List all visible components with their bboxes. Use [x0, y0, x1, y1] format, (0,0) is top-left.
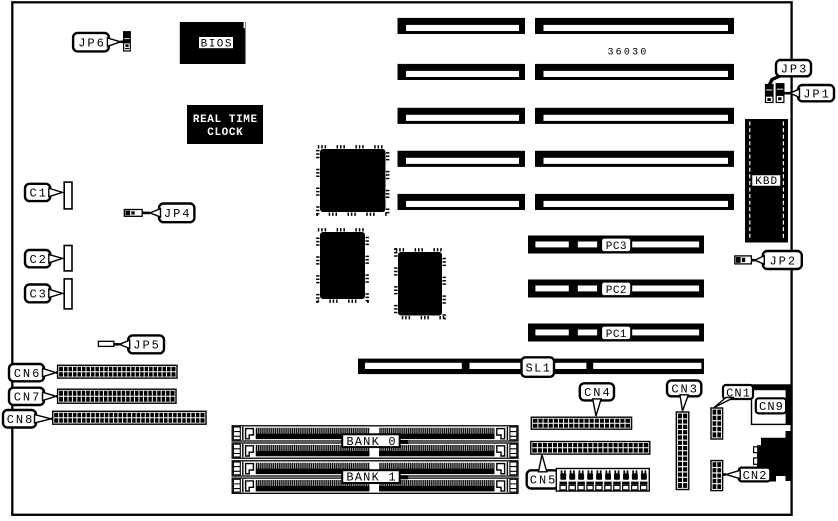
svg-text:JP1: JP1 — [803, 87, 831, 101]
svg-text:CN7: CN7 — [14, 391, 42, 405]
svg-text:JP4: JP4 — [164, 207, 192, 221]
svg-text:BANK 0: BANK 0 — [346, 435, 396, 449]
svg-text:JP3: JP3 — [781, 62, 809, 76]
svg-text:SL1: SL1 — [526, 361, 552, 375]
svg-text:CN5: CN5 — [530, 474, 558, 488]
svg-text:C2: C2 — [29, 253, 47, 267]
svg-text:JP2: JP2 — [769, 254, 797, 268]
svg-text:CN9: CN9 — [759, 400, 784, 414]
svg-text:JP6: JP6 — [78, 36, 106, 50]
svg-text:JP5: JP5 — [133, 339, 161, 353]
svg-text:BANK 1: BANK 1 — [346, 471, 396, 485]
svg-text:CLOCK: CLOCK — [207, 127, 243, 139]
svg-text:KBD: KBD — [755, 176, 778, 188]
svg-text:CN3: CN3 — [671, 383, 699, 397]
svg-text:C1: C1 — [29, 187, 47, 201]
svg-text:36030: 36030 — [607, 48, 648, 59]
svg-text:PC1: PC1 — [606, 329, 627, 341]
svg-text:CN1: CN1 — [726, 386, 751, 400]
svg-text:CN6: CN6 — [14, 367, 42, 381]
svg-text:PC2: PC2 — [606, 285, 627, 297]
svg-text:C3: C3 — [29, 288, 47, 302]
svg-text:REAL TIME: REAL TIME — [193, 114, 258, 126]
svg-text:CN8: CN8 — [7, 413, 35, 427]
svg-text:CN4: CN4 — [584, 386, 612, 400]
svg-text:PC3: PC3 — [606, 241, 627, 253]
svg-text:BIOS: BIOS — [201, 38, 233, 50]
svg-text:CN2: CN2 — [743, 469, 768, 483]
